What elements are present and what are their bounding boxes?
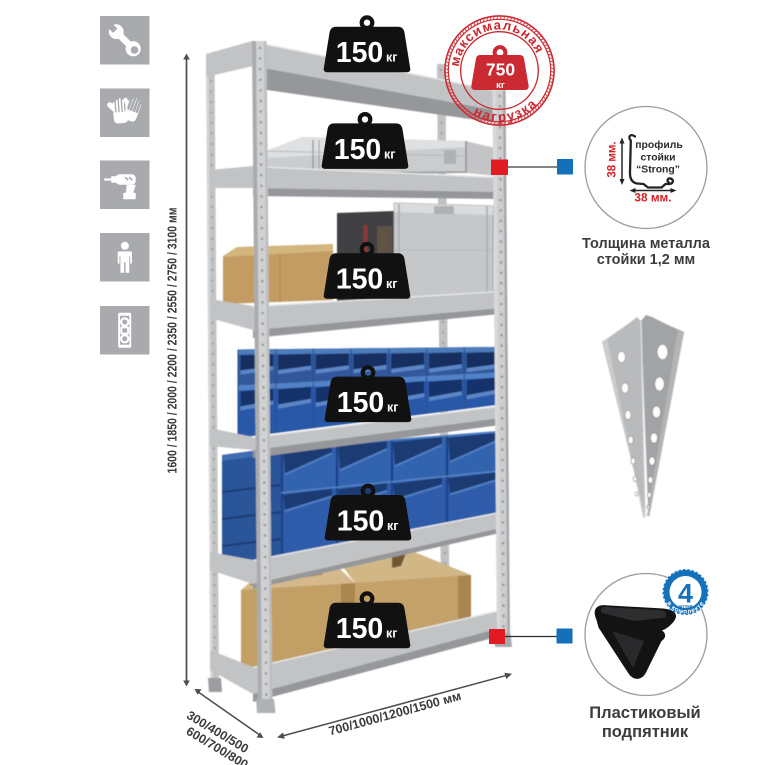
svg-text:кг: кг [386,627,397,641]
svg-text:150: 150 [336,613,384,645]
svg-text:штуки: штуки [679,604,693,609]
svg-text:150: 150 [336,264,384,296]
svg-text:750: 750 [486,59,515,79]
svg-text:кг: кг [384,147,395,161]
svg-text:38 мм.: 38 мм. [607,141,619,177]
svg-text:150: 150 [336,37,384,69]
svg-text:Пластиковый: Пластиковый [589,704,700,722]
svg-text:подпятник: подпятник [602,723,689,741]
svg-text:700/1000/1200/1500 мм: 700/1000/1200/1500 мм [327,689,463,739]
svg-text:38 мм.: 38 мм. [634,191,671,205]
svg-text:150: 150 [337,387,385,419]
svg-text:“Strong”: “Strong” [636,165,680,176]
svg-text:150: 150 [337,506,385,538]
svg-text:профиль: профиль [635,139,682,151]
svg-text:стойки 1,2 мм: стойки 1,2 мм [597,252,696,268]
svg-text:стойки: стойки [640,153,675,164]
svg-text:Толщина металла: Толщина металла [582,236,711,252]
svg-text:кг: кг [386,51,397,65]
svg-text:кг: кг [386,277,397,291]
svg-text:1600 / 1850 / 2000 / 2200 / 23: 1600 / 1850 / 2000 / 2200 / 2350 / 2550 … [166,208,180,474]
svg-text:кг: кг [387,401,398,415]
svg-text:кг: кг [387,519,398,533]
svg-text:150: 150 [334,134,382,166]
svg-text:кг: кг [496,80,505,91]
